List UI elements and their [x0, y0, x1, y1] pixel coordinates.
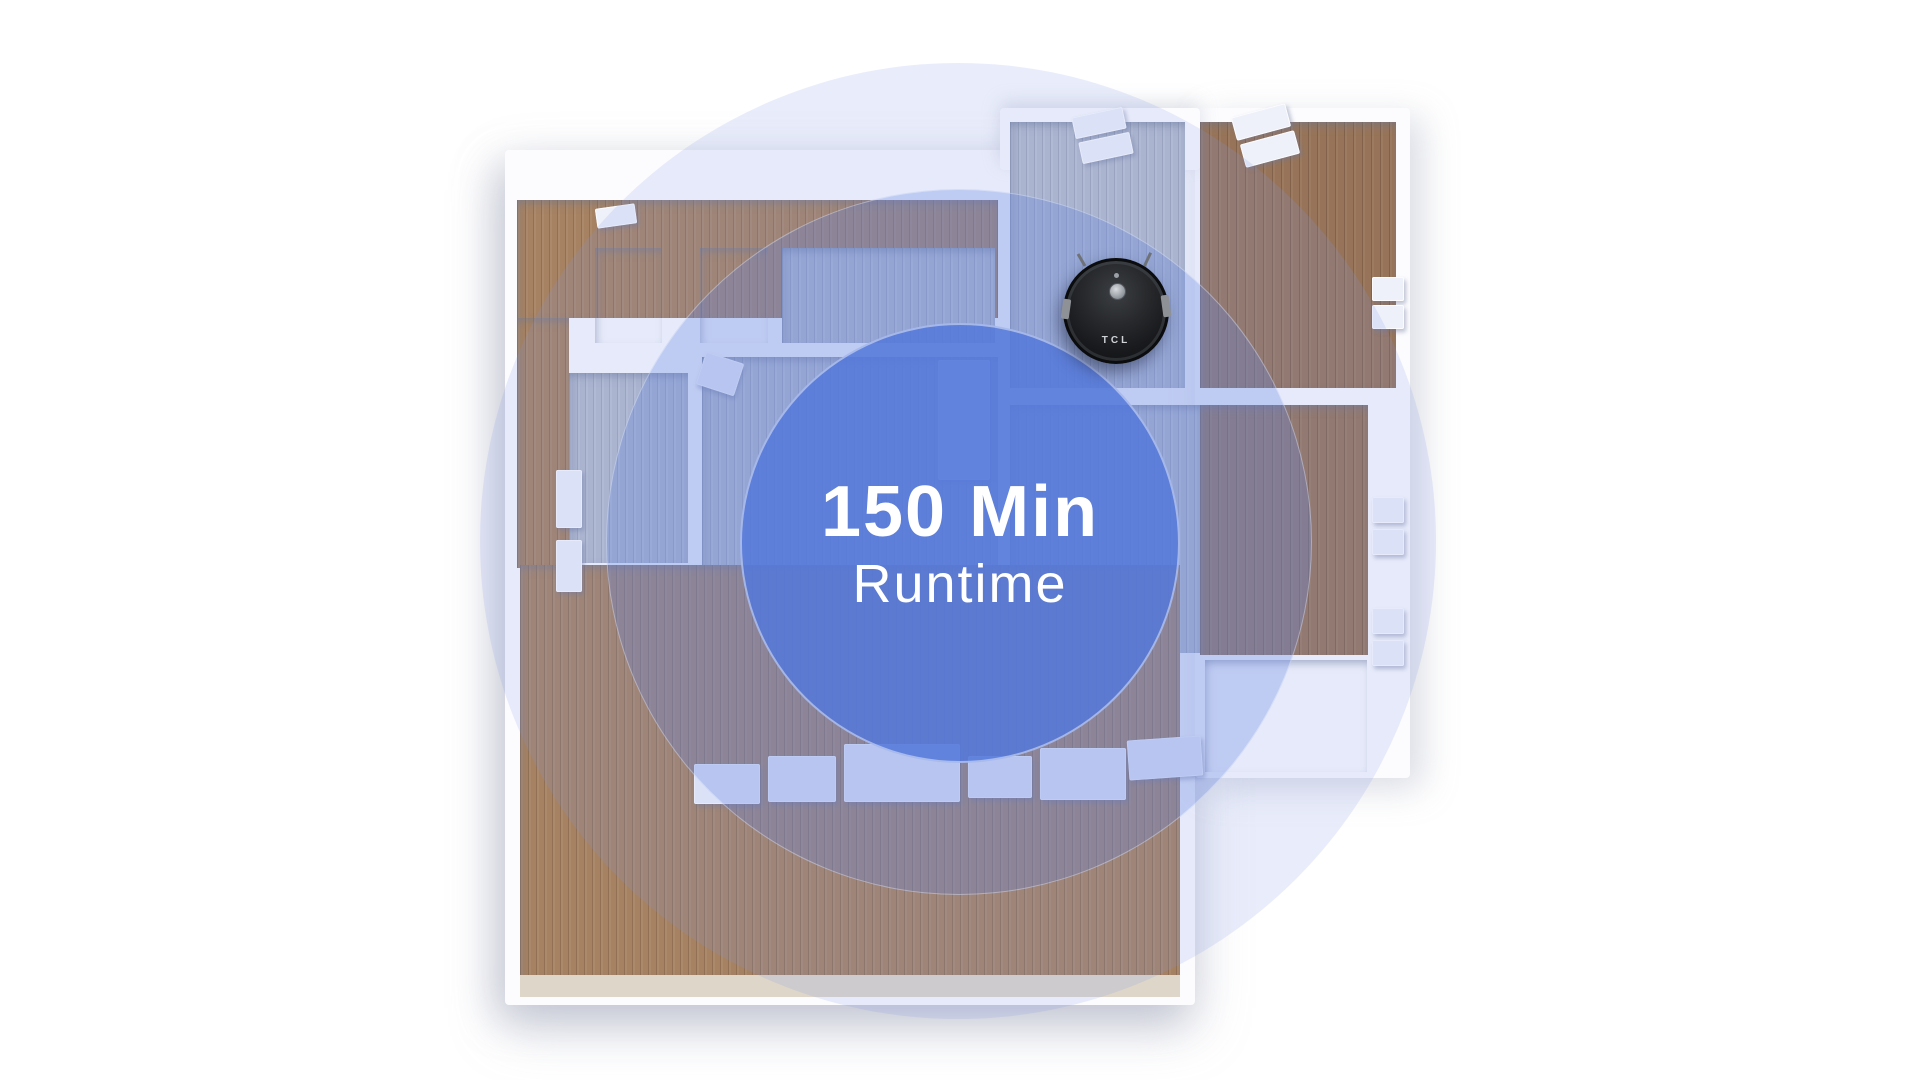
- bumper-left: [1061, 299, 1072, 320]
- indicator-dot: [1114, 273, 1119, 278]
- scene: 150 Min Runtime TCL: [0, 0, 1920, 1080]
- robot-camera-button: [1109, 283, 1126, 300]
- robot-brand-label: TCL: [1066, 335, 1166, 346]
- runtime-value: 150 Min: [821, 471, 1099, 553]
- window-box: [1372, 277, 1404, 301]
- coverage-circle-inner: 150 Min Runtime: [740, 323, 1180, 763]
- robot-vacuum: TCL: [1063, 258, 1169, 364]
- runtime-label: Runtime: [852, 553, 1067, 615]
